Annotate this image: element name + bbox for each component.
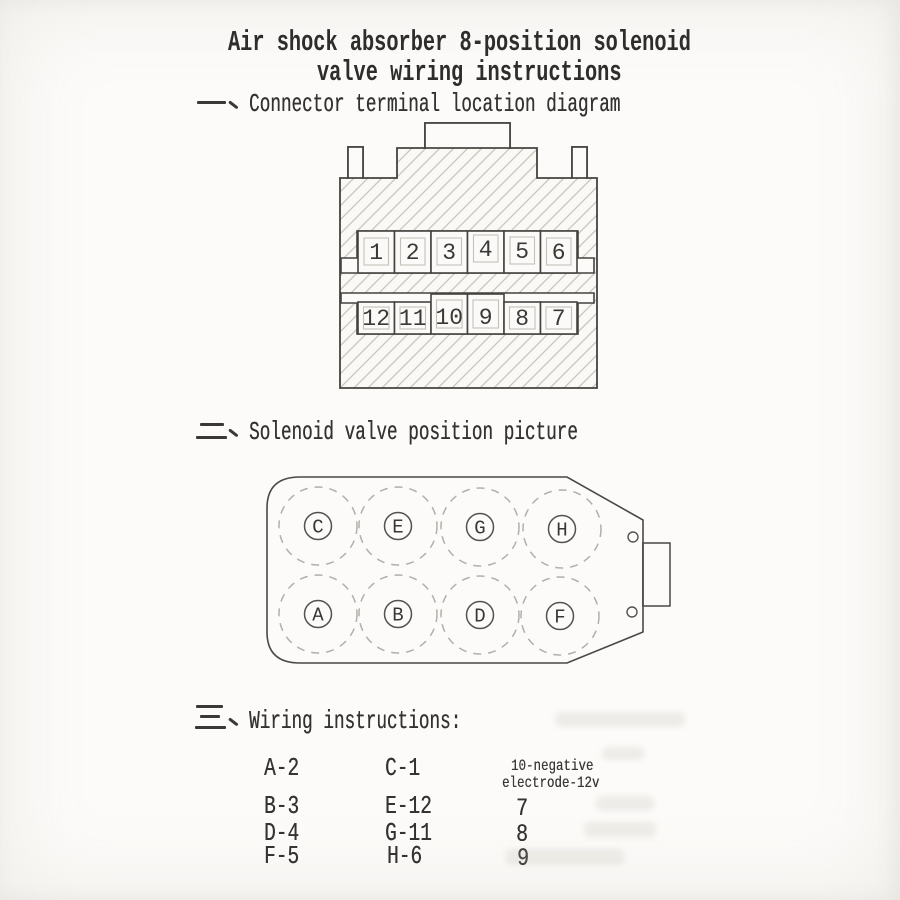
terminal-cell: 3	[431, 231, 468, 273]
wiring-entry: F-5	[264, 843, 299, 869]
wiring-entry: C-1	[385, 755, 420, 781]
terminal-number: 10	[435, 305, 463, 331]
power-note-line2: electrode-12v	[502, 775, 599, 791]
valve-connector-tab	[643, 543, 670, 606]
terminal-number: 12	[362, 306, 390, 332]
mounting-hole	[628, 532, 638, 542]
terminal-cell: 6	[541, 231, 578, 273]
terminal-cell: 4	[468, 231, 505, 273]
power-note-line1: 10-negative	[511, 758, 593, 774]
connector-left-tab	[348, 147, 363, 178]
mounting-hole	[627, 607, 637, 617]
port-letter: F	[554, 607, 565, 629]
connector-diagram: 1 2 3 4	[340, 123, 597, 388]
terminal-cell: 1	[358, 231, 395, 273]
terminal-cell: 8	[504, 302, 541, 334]
bleed-through-smudge	[555, 712, 685, 727]
wiring-entry: H-6	[387, 843, 422, 869]
wiring-entry: 7	[516, 796, 528, 821]
wiring-entry: A-2	[264, 755, 299, 781]
port-letter: B	[392, 605, 403, 627]
terminal-cell: 7	[541, 302, 578, 334]
port-letter: H	[556, 520, 567, 542]
terminal-row-top: 1 2 3 4	[358, 231, 577, 273]
port-letter: E	[392, 517, 403, 539]
terminal-number: 5	[515, 239, 529, 265]
diagrams-svg: 1 2 3 4	[0, 0, 900, 900]
terminal-cell: 12	[358, 302, 395, 334]
wiring-entry: B-3	[264, 793, 299, 819]
port-letter: C	[312, 517, 323, 539]
terminal-number: 1	[369, 240, 383, 266]
terminal-cell: 5	[504, 231, 541, 273]
terminal-cell: 9	[468, 294, 505, 334]
terminal-number: 11	[399, 306, 427, 332]
terminal-number: 6	[552, 240, 566, 266]
port-letter: D	[474, 606, 485, 628]
terminal-cell: 10	[431, 294, 468, 334]
instruction-sheet: Air shock absorber 8-position solenoid v…	[0, 0, 900, 900]
valve-body	[267, 477, 643, 663]
bleed-through-smudge	[506, 849, 624, 865]
terminal-number: 3	[442, 240, 456, 266]
terminal-number: 7	[552, 306, 566, 332]
bleed-through-smudge	[584, 822, 656, 837]
port-letter: A	[312, 605, 324, 627]
valve-diagram: C E G H A	[267, 477, 670, 663]
connector-right-tab	[572, 147, 587, 178]
terminal-number: 8	[515, 306, 529, 332]
connector-top-key-tab	[425, 123, 510, 148]
wiring-entry: E-12	[385, 793, 432, 819]
terminal-number: 2	[406, 240, 420, 266]
terminal-number: 9	[479, 305, 493, 331]
bleed-through-smudge	[602, 747, 644, 760]
terminal-number: 4	[479, 237, 493, 263]
terminal-cell: 2	[395, 231, 432, 273]
port-letter: G	[474, 518, 485, 540]
bleed-through-smudge	[596, 796, 654, 811]
terminal-cell: 11	[395, 302, 432, 334]
